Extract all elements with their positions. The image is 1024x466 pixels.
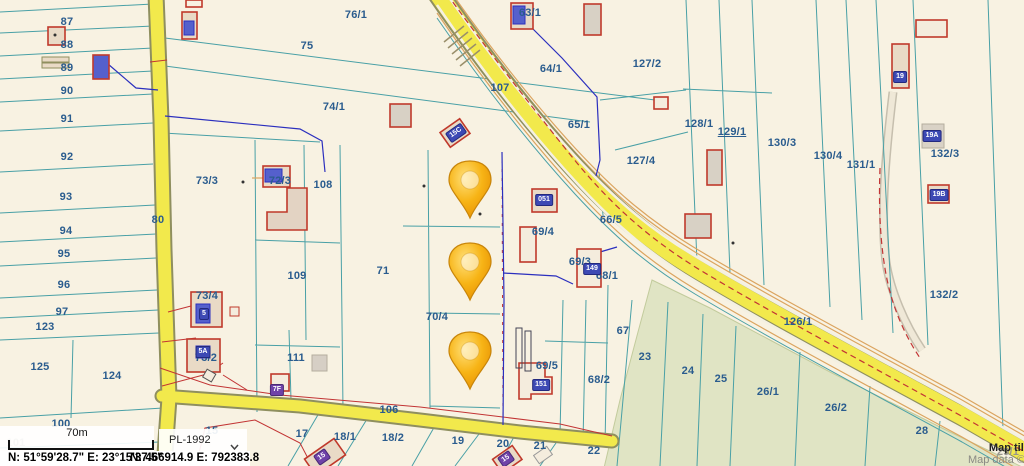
coordinate-readout: N: 51°59'28.7" E: 23°15'37.5" N: 466914.… [0, 451, 250, 466]
crs-selector[interactable]: PL-1992 [159, 429, 247, 453]
track-road [884, 92, 922, 350]
map-pin[interactable] [447, 331, 493, 391]
map-viewport[interactable]: 8788899091929394959697123125124100101807… [0, 0, 1024, 466]
map-data-attribution[interactable]: Map data © C [968, 454, 1024, 466]
crs-value[interactable]: PL-1992 [169, 434, 211, 446]
map-attribution: Map tiles Map data © C [968, 442, 1024, 466]
scale-bar: 70m [0, 426, 154, 452]
projected-coordinates: N: 466914.9 E: 792383.8 [130, 452, 259, 464]
map-canvas[interactable] [0, 0, 1024, 466]
map-pin[interactable] [447, 242, 493, 302]
scale-bar-label: 70m [0, 427, 154, 439]
forest-area [604, 280, 1024, 466]
map-pin[interactable] [447, 160, 493, 220]
map-tiles-attribution[interactable]: Map tiles [968, 442, 1024, 454]
scale-bar-line [8, 440, 154, 450]
